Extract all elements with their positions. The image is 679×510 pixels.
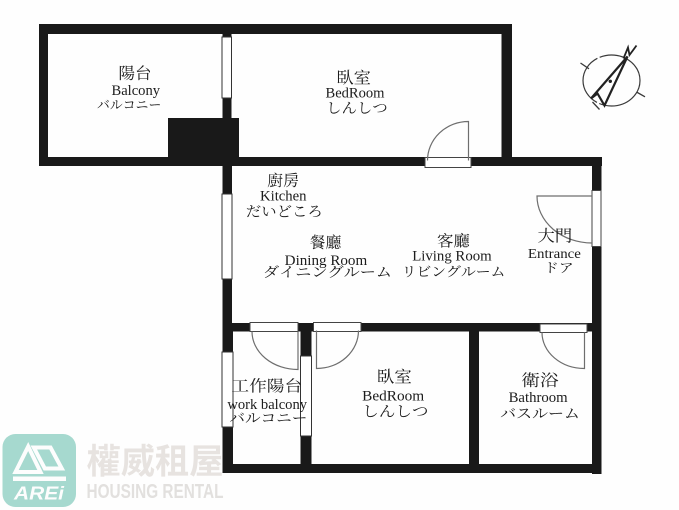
svg-text:Bathroom: Bathroom	[509, 390, 568, 406]
svg-text:AREi: AREi	[13, 484, 65, 504]
svg-text:Balcony: Balcony	[112, 83, 161, 99]
svg-text:work balcony: work balcony	[227, 397, 307, 413]
svg-text:Entrance: Entrance	[528, 247, 581, 262]
svg-text:HOUSING RENTAL: HOUSING RENTAL	[87, 481, 224, 503]
svg-text:Kitchen: Kitchen	[260, 188, 307, 204]
svg-text:BedRoom: BedRoom	[362, 389, 424, 405]
svg-text:Living Room: Living Room	[412, 248, 492, 264]
svg-text:BedRoom: BedRoom	[326, 86, 385, 102]
svg-text:Dining Room: Dining Room	[285, 253, 368, 269]
